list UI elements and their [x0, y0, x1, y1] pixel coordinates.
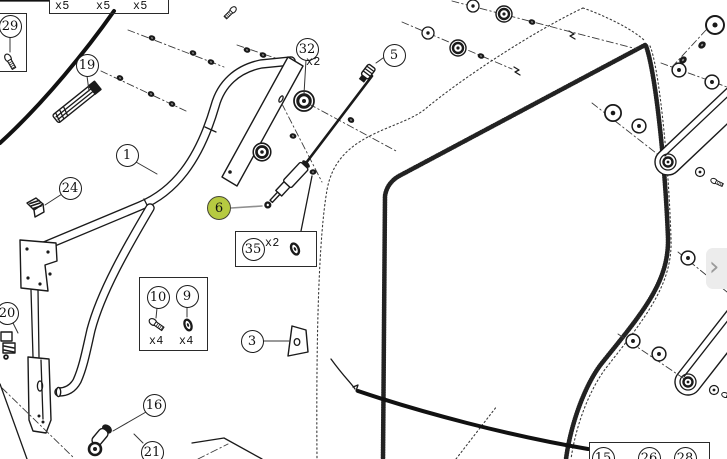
washer [605, 105, 621, 121]
plate-part-3 [288, 326, 308, 356]
nut [310, 169, 317, 174]
nut [347, 116, 356, 124]
washer [681, 251, 695, 265]
grommet [496, 6, 512, 22]
break-mark [569, 31, 575, 39]
callout-16[interactable]: 16 [143, 394, 166, 417]
screw [223, 5, 237, 19]
rail-part-19 [52, 80, 102, 124]
fastener-row-2 [101, 71, 186, 111]
quantity-box-top: x5 x5 x5 [49, 0, 169, 14]
grommet [253, 143, 271, 161]
washer [710, 386, 719, 395]
next-page-button[interactable]: › [706, 248, 727, 289]
washer [706, 16, 724, 34]
callout-9[interactable]: 9 [176, 285, 199, 308]
nut [528, 18, 536, 25]
glass-edge-bottom [456, 406, 497, 459]
callout-35[interactable]: 35 [242, 238, 265, 261]
strut-body [261, 158, 311, 211]
leader-6 [231, 206, 262, 208]
washer [652, 347, 666, 361]
screw [710, 177, 724, 187]
fastener-row-1 [128, 30, 224, 67]
chevron-right-icon: › [709, 254, 719, 280]
parts-diagram-canvas: x5 x5 x5 29 19 32 x2 5 1 24 6 35 x2 20 1… [0, 0, 727, 459]
washer-row-upper [452, 0, 637, 49]
washer [422, 27, 434, 39]
qty-label-32: x2 [306, 56, 321, 69]
glass-seal-left [383, 45, 645, 459]
nut [207, 58, 215, 65]
callout-1[interactable]: 1 [116, 144, 139, 167]
callout-21[interactable]: 21 [141, 441, 164, 459]
qty-label: x5 [133, 0, 148, 13]
qty-label: x5 [96, 0, 111, 13]
nut [243, 46, 251, 53]
valve-bolt [358, 64, 376, 84]
washer-row-mid [592, 103, 665, 160]
callout-19[interactable]: 19 [76, 54, 99, 77]
washer [705, 75, 719, 89]
qty-label-35: x2 [265, 237, 280, 250]
washer [467, 0, 479, 12]
diagram-line-art [0, 0, 727, 459]
clip-part-24 [27, 198, 44, 217]
callout-5[interactable]: 5 [383, 44, 406, 67]
callout-10[interactable]: 10 [147, 286, 170, 309]
bolt [697, 40, 707, 50]
mounting-plate [222, 57, 398, 231]
washer-row-lower [402, 22, 512, 69]
glass-edge-top [583, 8, 645, 41]
callout-6-highlighted[interactable]: 6 [207, 196, 231, 220]
nut [116, 74, 124, 82]
callout-24[interactable]: 24 [59, 177, 82, 200]
nut [189, 49, 197, 56]
fastener-row-3 [237, 45, 278, 59]
washer [696, 168, 705, 177]
elbow-fitting-16 [89, 422, 114, 455]
grommet [450, 40, 466, 56]
washer-row-right [661, 16, 727, 89]
nut [147, 90, 155, 98]
washer [632, 119, 646, 133]
washer [626, 334, 640, 348]
qty-label-9: x4 [179, 335, 194, 348]
break-mark [514, 67, 520, 75]
callout-20[interactable]: 20 [0, 302, 19, 325]
nut [168, 100, 176, 108]
latch-part-20 [1, 332, 15, 360]
callout-3[interactable]: 3 [241, 330, 264, 353]
nut [289, 133, 297, 139]
bolt-row-top-right [672, 30, 707, 67]
callout-29[interactable]: 29 [0, 15, 22, 38]
bottom-frame-lines [0, 359, 588, 459]
screw [721, 392, 727, 401]
qty-label-10: x4 [149, 335, 164, 348]
nut [477, 52, 485, 59]
qty-label: x5 [55, 0, 70, 13]
nut [259, 51, 267, 58]
